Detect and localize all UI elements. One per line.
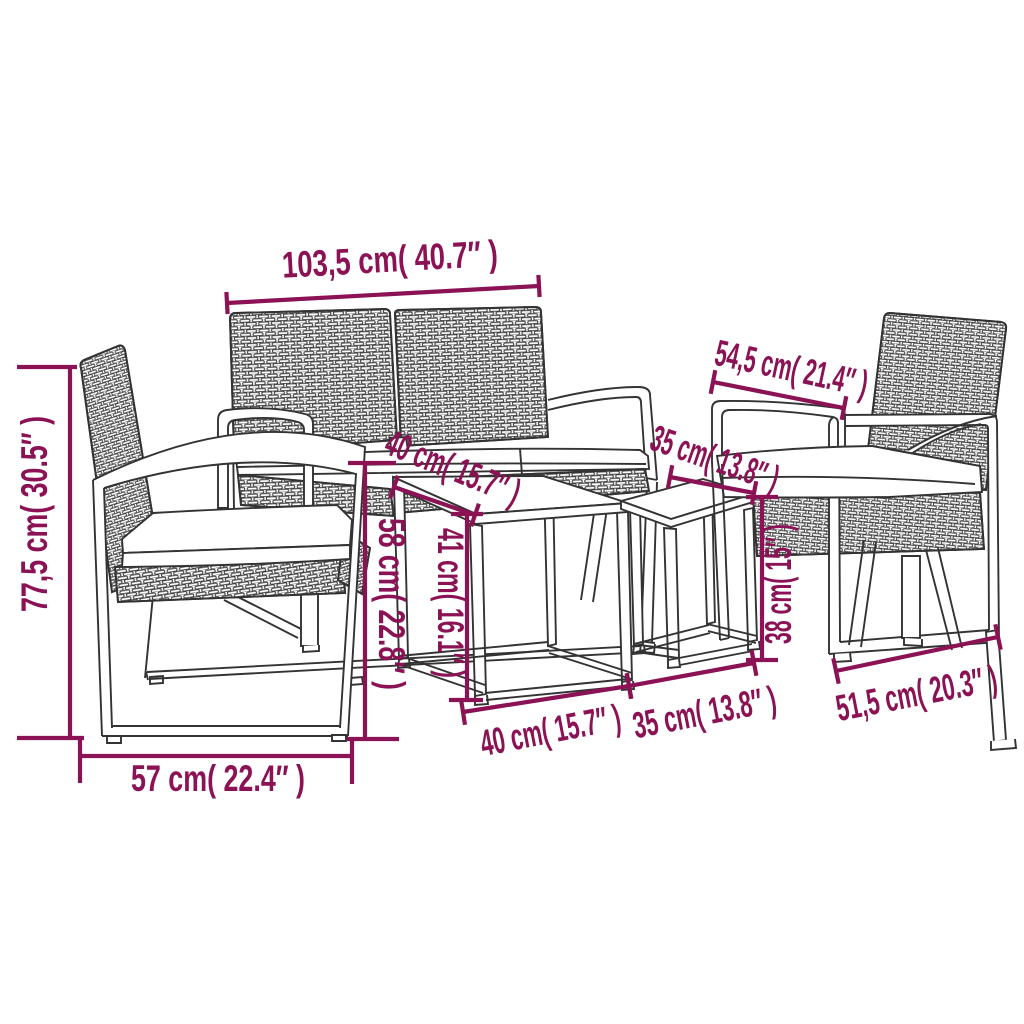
svg-text:38 cm( 15″ ): 38 cm( 15″ ) [758,524,799,644]
svg-text:57 cm( 22.4″ ): 57 cm( 22.4″ ) [131,758,305,799]
svg-text:77,5 cm( 30.5″ ): 77,5 cm( 30.5″ ) [14,416,55,612]
svg-text:41 cm( 16.1″ ): 41 cm( 16.1″ ) [430,528,471,678]
svg-text:58 cm( 22.8″ ): 58 cm( 22.8″ ) [371,518,412,690]
